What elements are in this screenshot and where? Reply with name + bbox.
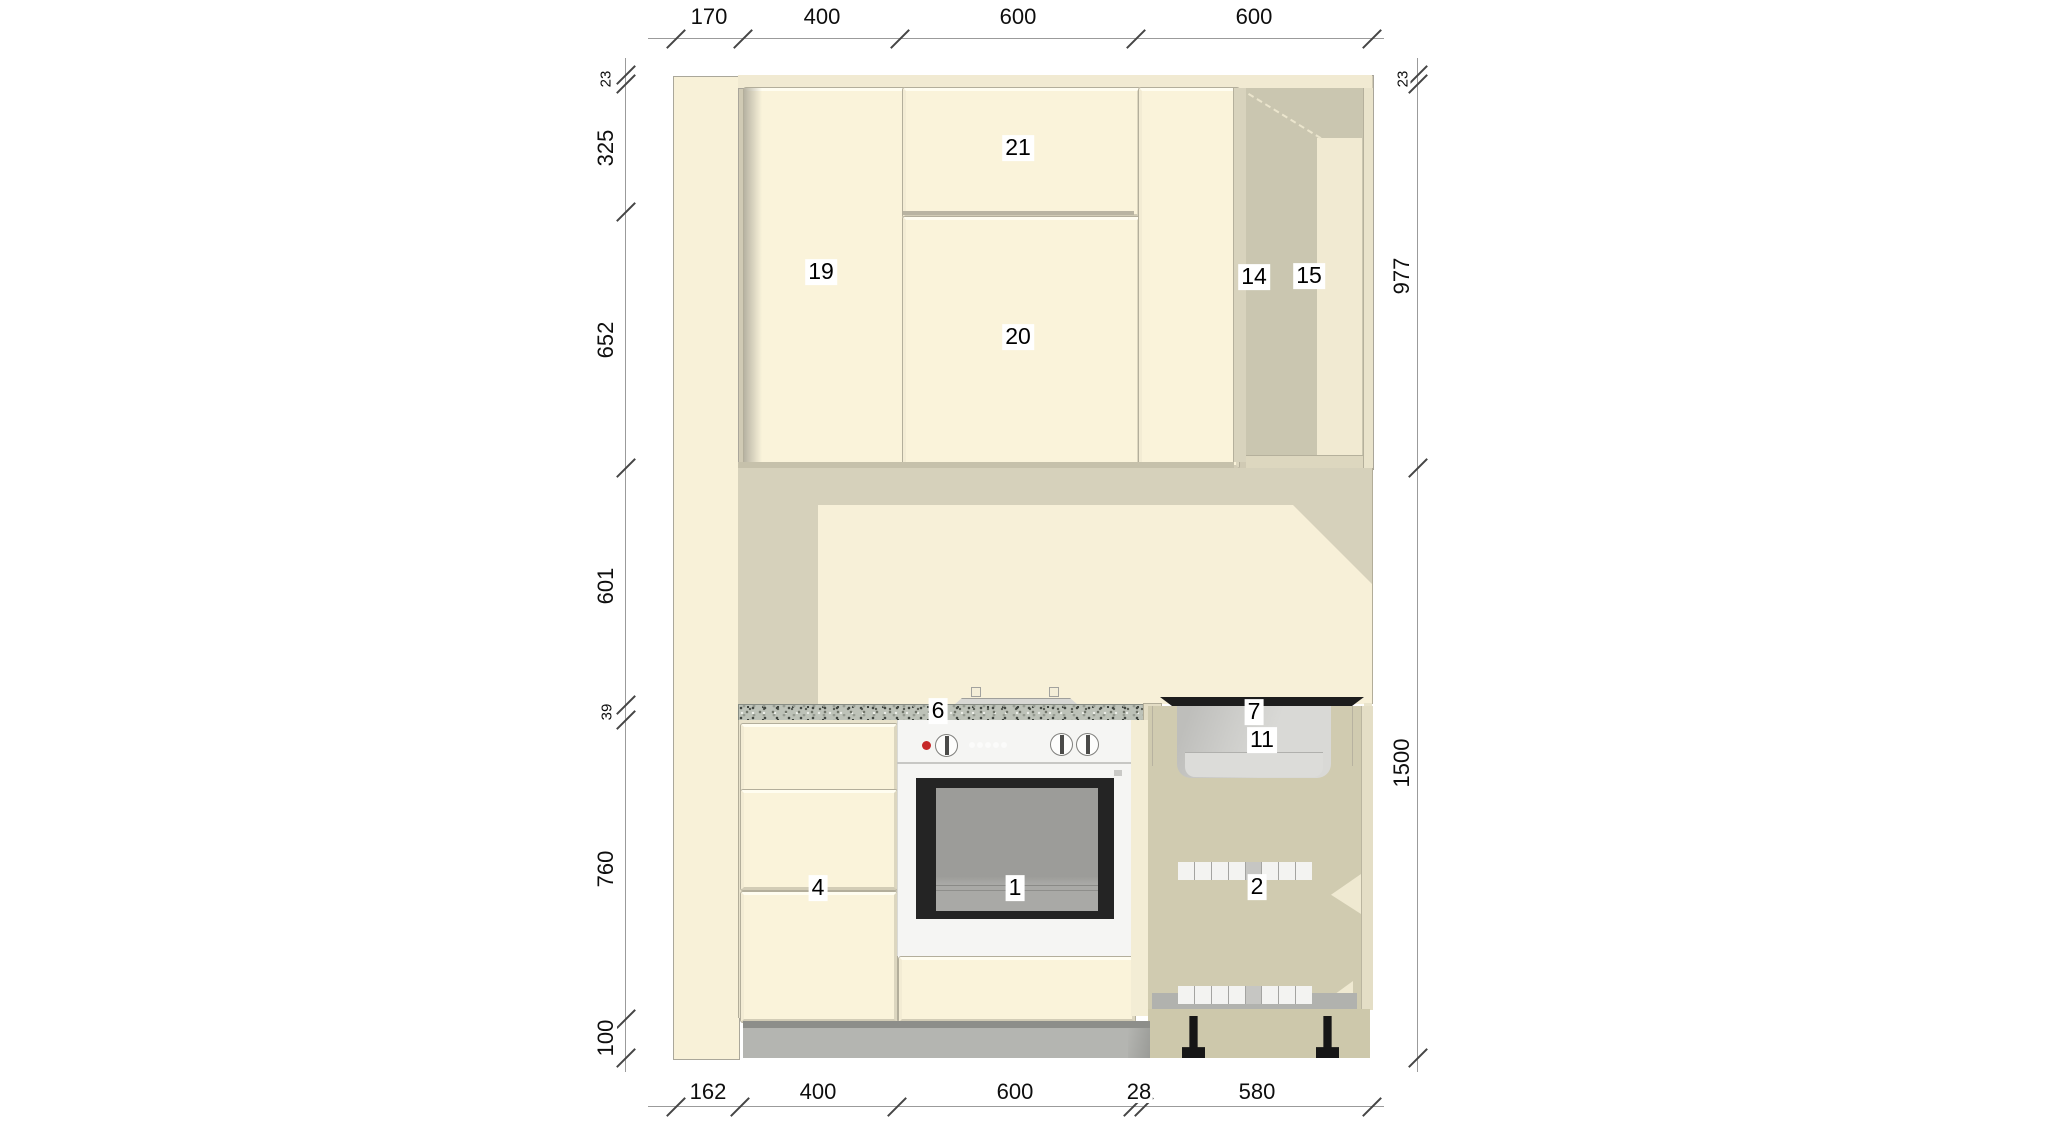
oven-timer-knob[interactable] (1076, 733, 1099, 756)
dim-right-23: 23 (1396, 69, 1411, 90)
oven-button-2[interactable] (977, 742, 983, 748)
oven-button-1[interactable] (969, 742, 975, 748)
dim-left-325: 325 (595, 128, 617, 169)
corner-shelf-strip (1317, 138, 1362, 455)
filler-strip (1131, 720, 1149, 1016)
kitchen-elevation-canvas: 1 2 4 6 7 11 14 15 19 20 21 170 400 600 … (0, 0, 2048, 1133)
oven-button-4[interactable] (993, 742, 999, 748)
dishwasher-lower-basket[interactable] (1178, 986, 1312, 1004)
item-label-oven: 1 (1006, 875, 1025, 901)
dim-left-39: 39 (600, 702, 615, 723)
tall-side-panel[interactable] (673, 76, 740, 1060)
item-label-hob: 7 (1245, 699, 1264, 725)
dim-top-600a: 600 (998, 6, 1039, 28)
item-label-drawer-unit: 4 (809, 875, 828, 901)
drawer-front-3[interactable] (741, 892, 897, 1022)
corner-right-frame (1363, 88, 1373, 468)
dim-top-170: 170 (689, 6, 730, 28)
item-label-corner-shelf: 15 (1293, 263, 1325, 289)
plinth-end-shading (1128, 1028, 1150, 1058)
item-label-wall-unit-19: 19 (805, 259, 837, 285)
dishwasher-right-frame (1361, 706, 1373, 1010)
dim-left-601: 601 (595, 566, 617, 607)
oven-hinge (1114, 770, 1122, 776)
dim-right-977: 977 (1391, 256, 1413, 297)
dishwasher-upper-basket[interactable] (1178, 862, 1312, 880)
oven-control-panel-line (897, 762, 1131, 764)
dim-left-760: 760 (595, 849, 617, 890)
dim-top-400: 400 (802, 6, 843, 28)
item-label-dishwasher: 2 (1248, 874, 1267, 900)
item-label-sink: 11 (1247, 727, 1277, 753)
plinth-top-shadow (743, 1021, 1150, 1028)
dim-bottom-400: 400 (798, 1081, 839, 1103)
dim-top-600b: 600 (1234, 6, 1275, 28)
drawer-front-1[interactable] (741, 724, 897, 794)
dim-left-100: 100 (595, 1018, 617, 1059)
oven-base-drawer-front[interactable] (899, 957, 1135, 1022)
dim-bottom-580: 580 (1237, 1081, 1278, 1103)
wall-door-19-shadow (744, 88, 762, 462)
hob-knob-right (1049, 687, 1059, 697)
sink-bowl-bottom (1185, 752, 1323, 777)
wall-units-top-board (738, 75, 1372, 89)
wall-door-gap-shadow (903, 211, 1134, 215)
oven-function-knob[interactable] (935, 734, 958, 757)
corner-bottom-board (1246, 455, 1372, 469)
corner-wall-door[interactable] (1139, 88, 1239, 468)
dim-left-652: 652 (595, 320, 617, 361)
dim-left-23: 23 (599, 69, 614, 90)
item-label-corner-carcass: 14 (1238, 264, 1270, 290)
oven-button-3[interactable] (985, 742, 991, 748)
dim-right-1500: 1500 (1391, 737, 1413, 790)
oven-indicator-light (922, 741, 931, 750)
sink-cabinet-side-right (1352, 706, 1353, 766)
item-label-wall-unit-20: 20 (1002, 324, 1034, 350)
oven-button-5[interactable] (1001, 742, 1007, 748)
dim-bottom-28: 28 (1125, 1081, 1153, 1103)
hob-profile[interactable] (955, 698, 1077, 705)
hob-knob-left (971, 687, 981, 697)
item-label-wall-unit-21: 21 (1002, 135, 1034, 161)
dim-bottom-162: 162 (688, 1081, 729, 1103)
dim-bottom-600: 600 (995, 1081, 1036, 1103)
oven-temp-knob[interactable] (1050, 733, 1073, 756)
item-label-worktop: 6 (929, 698, 948, 724)
sink-cabinet-side-left (1152, 706, 1153, 766)
wall-light-area (818, 505, 1372, 704)
